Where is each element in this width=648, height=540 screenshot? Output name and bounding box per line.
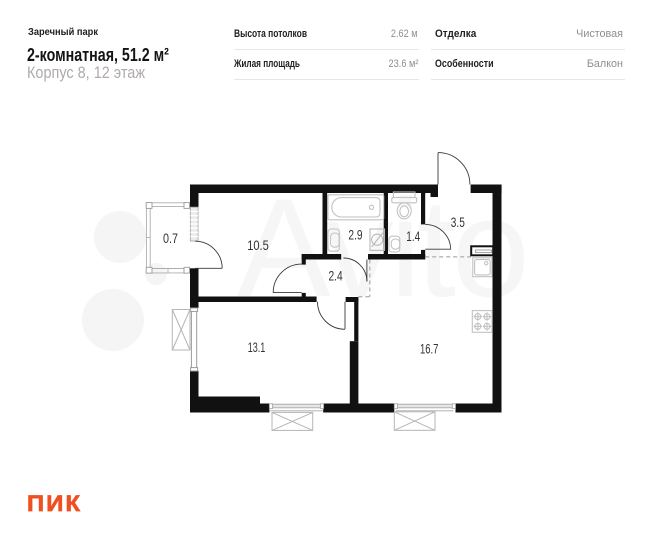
svg-text:1.4: 1.4: [406, 229, 420, 244]
svg-text:0.7: 0.7: [163, 231, 178, 246]
svg-text:16.7: 16.7: [420, 341, 438, 356]
svg-text:2.4: 2.4: [329, 268, 344, 283]
svg-text:13.1: 13.1: [248, 340, 266, 355]
svg-text:10.5: 10.5: [247, 238, 269, 253]
svg-text:2.9: 2.9: [348, 227, 362, 242]
svg-text:3.5: 3.5: [451, 215, 465, 230]
